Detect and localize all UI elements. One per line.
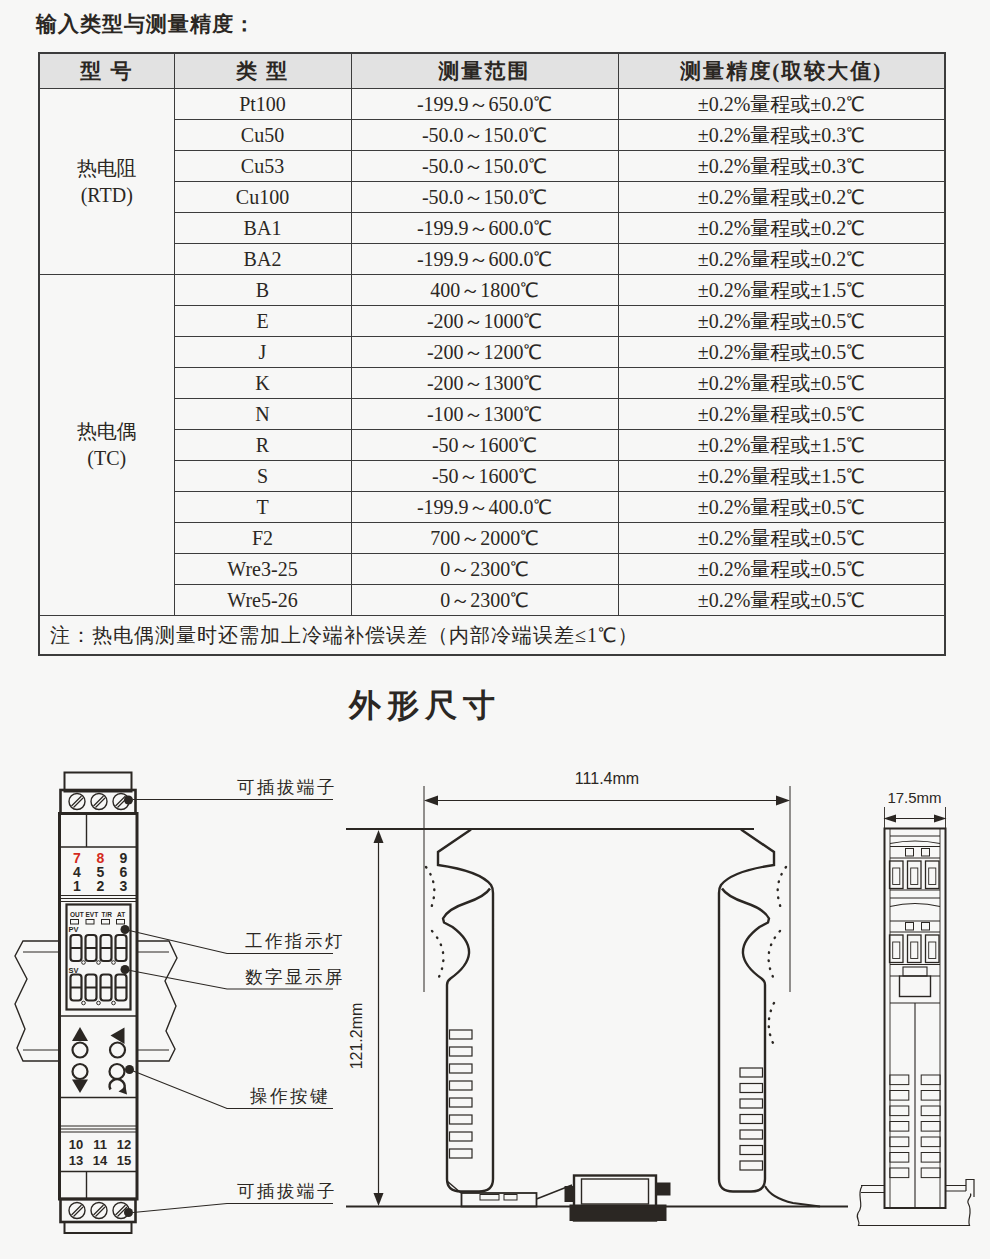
vent-slots-left	[450, 1030, 473, 1158]
status-led-labels: OUT EVT T/R AT	[70, 911, 125, 924]
terminal-numbers-top: 7 8 9 4 5 6 1 2 3	[73, 850, 128, 894]
led-label-at: AT	[117, 911, 125, 918]
callout-terminal-top: 可插拔端子	[237, 777, 337, 797]
side-view-drawing: 111.4mm 121.2mm	[346, 770, 848, 1221]
device-left-contour	[438, 830, 493, 1192]
outline-dimension-drawing: 7 8 9 4 5 6 1 2 3 OUT EVT T/R AT	[0, 0, 990, 1259]
led-label-out: OUT	[70, 911, 84, 918]
top-terminal-screws	[69, 794, 129, 810]
sv-display	[71, 975, 127, 1005]
sv-label: SV	[69, 966, 79, 975]
bottom-terminal-screws	[69, 1203, 129, 1219]
terminal-number: 13	[69, 1153, 83, 1168]
callout-indicator: 工作指示灯	[245, 931, 345, 951]
end-terminals-top	[890, 861, 940, 889]
bottom-tab	[65, 1222, 132, 1233]
callout-keys: 操作按键	[250, 1086, 330, 1106]
terminal-number: 3	[120, 878, 128, 894]
terminal-number: 14	[93, 1153, 108, 1168]
up-key[interactable]	[73, 1043, 88, 1058]
terminal-number: 11	[93, 1137, 107, 1152]
din-rail-right	[138, 941, 177, 1061]
pv-label: PV	[69, 925, 79, 934]
pv-display	[71, 935, 127, 964]
terminal-number: 10	[69, 1137, 83, 1152]
terminal-numbers-bottom: 10 11 12 13 14 15	[69, 1137, 131, 1168]
terminal-number: 15	[117, 1153, 131, 1168]
end-view-din-rail	[857, 1180, 974, 1226]
left-key[interactable]	[110, 1043, 125, 1058]
display-window	[67, 905, 131, 1010]
width-dimension: 111.4mm	[575, 770, 639, 787]
callouts: 可插拔端子 工作指示灯 数字显示屏 操作按键 可插拔端子	[125, 777, 345, 1213]
led-label-evt: EVT	[86, 911, 99, 918]
height-dimension: 121.2mm	[348, 1003, 365, 1070]
terminal-number: 12	[117, 1137, 131, 1152]
end-view-drawing: 17.5mm	[857, 789, 974, 1226]
depth-dimension: 17.5mm	[887, 789, 941, 806]
top-terminal-callout-dot	[124, 796, 133, 805]
down-key[interactable]	[73, 1064, 88, 1079]
terminal-number: 2	[97, 878, 105, 894]
din-rail-left	[15, 941, 59, 1061]
device-right-contour	[719, 830, 774, 1192]
mounting-foot	[447, 1181, 572, 1207]
callout-terminal-bottom: 可插拔端子	[237, 1181, 337, 1201]
terminal-number: 1	[73, 878, 81, 894]
operation-keys[interactable]	[72, 1027, 127, 1095]
datasheet-page: 输入类型与测量精度： 型 号类 型测量范围测量精度(取较大值) 热电阻(RTD)…	[0, 0, 990, 1259]
top-tab	[65, 773, 132, 792]
din-rail-clip	[565, 1176, 671, 1222]
end-terminals-bottom	[890, 935, 940, 963]
front-view-drawing: 7 8 9 4 5 6 1 2 3 OUT EVT T/R AT	[15, 773, 345, 1234]
up-arrow-icon	[72, 1027, 88, 1041]
dotted-contours	[426, 867, 786, 1043]
vent-slots-right	[740, 1068, 763, 1170]
callout-display: 数字显示屏	[245, 967, 345, 987]
enter-key[interactable]	[110, 1064, 125, 1079]
rail-latch	[903, 967, 927, 976]
down-arrow-icon	[72, 1080, 88, 1094]
led-label-tr: T/R	[102, 911, 113, 918]
bottom-terminal-callout-dot	[124, 1208, 133, 1217]
